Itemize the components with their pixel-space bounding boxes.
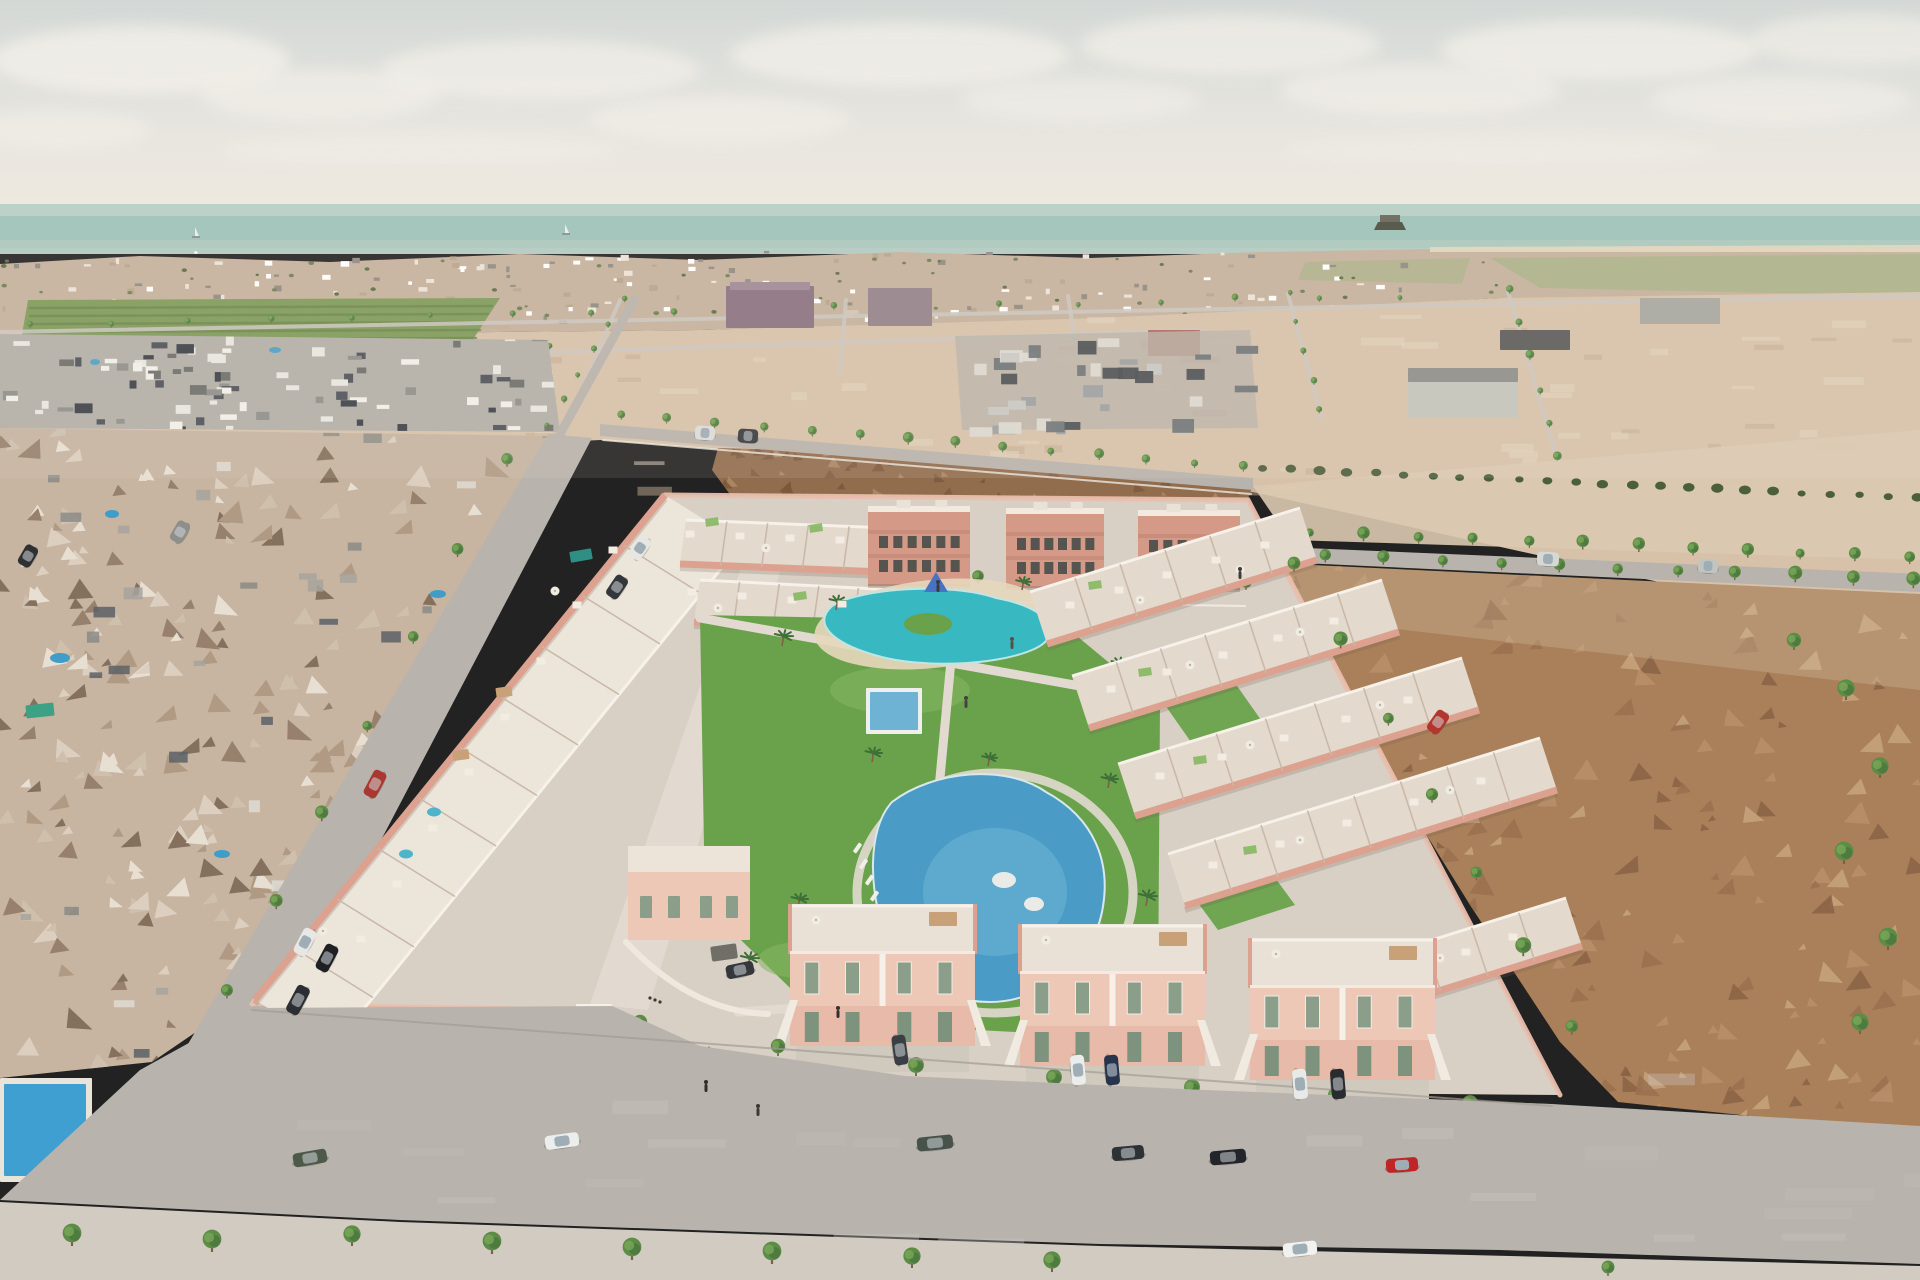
atmospheric-haze — [0, 248, 1920, 478]
corner-house — [628, 846, 750, 940]
kids-pool-island — [904, 613, 952, 635]
sea-haze-top — [0, 204, 1920, 216]
small-pool — [866, 688, 922, 734]
aerial-development-render — [0, 0, 1920, 1280]
render-scene — [0, 0, 1920, 1280]
car — [1535, 551, 1560, 567]
horizon-haze — [0, 164, 1920, 206]
apartment-block-1 — [868, 500, 970, 586]
north-townhouse-row-a — [680, 520, 890, 576]
front-house-1 — [774, 904, 991, 1072]
car — [1697, 558, 1720, 574]
